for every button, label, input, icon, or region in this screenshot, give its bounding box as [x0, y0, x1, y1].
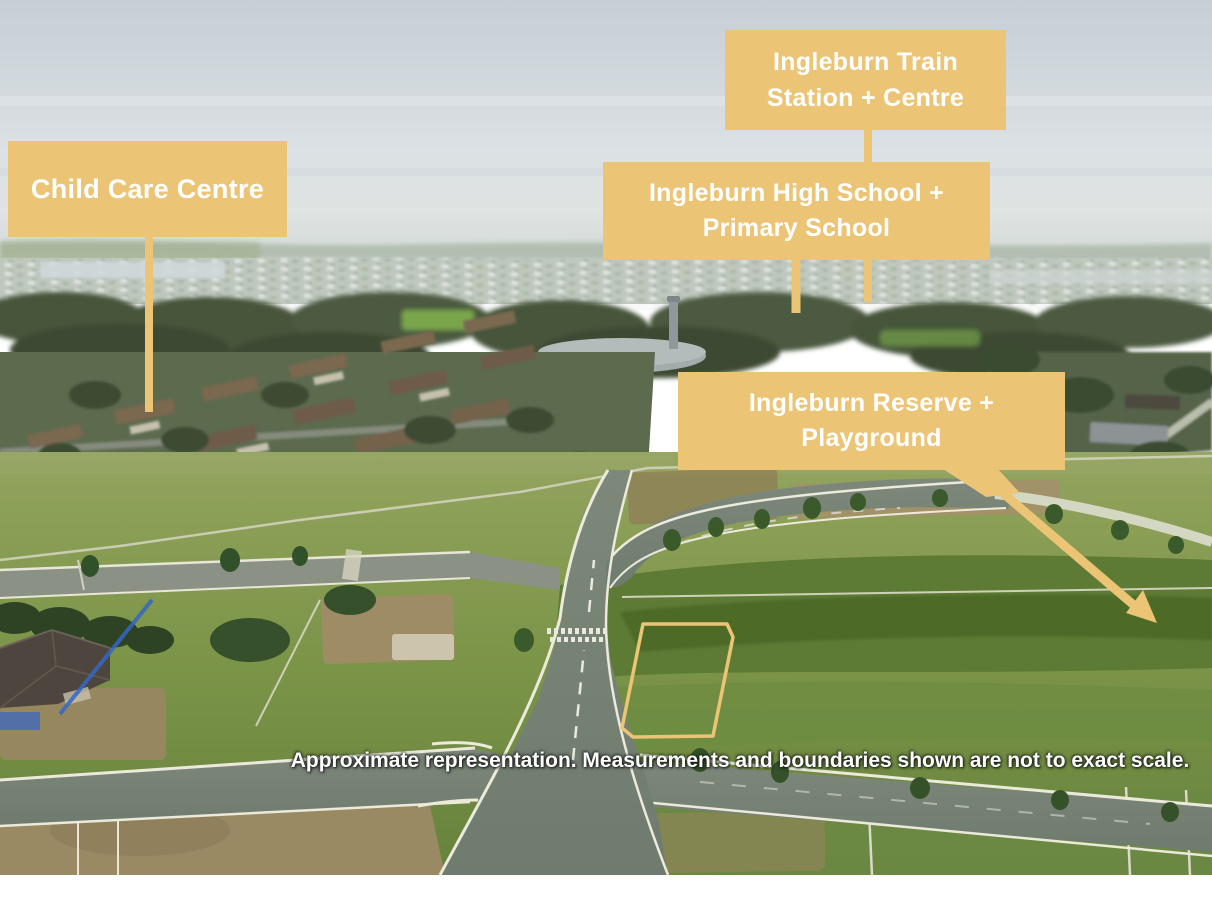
label-school: Ingleburn High School + Primary School [603, 162, 990, 260]
disclaimer-text: Approximate representation. Measurements… [270, 749, 1210, 773]
bottom-white-strip [0, 875, 1212, 909]
label-child-care: Child Care Centre [8, 141, 287, 237]
label-train-station: Ingleburn Train Station + Centre [725, 30, 1006, 130]
aerial-annotation-graphic: Ingleburn Train Station + Centre Child C… [0, 0, 1212, 909]
label-reserve: Ingleburn Reserve + Playground [678, 372, 1065, 470]
